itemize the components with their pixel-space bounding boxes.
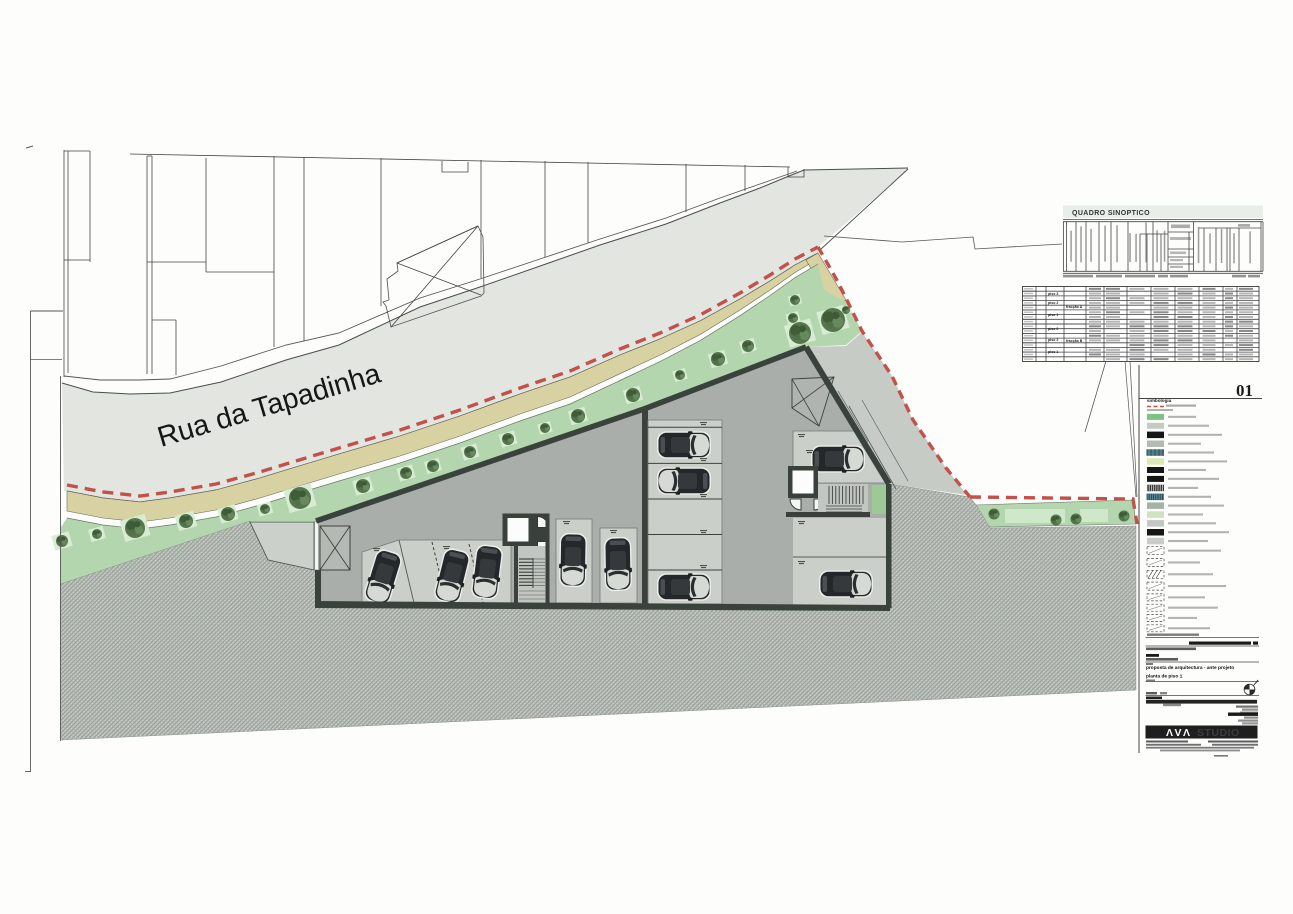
svg-text:piso 3: piso 3	[1048, 292, 1058, 296]
svg-text:piso 2: piso 2	[1048, 338, 1058, 342]
svg-text:fracção B: fracção B	[1066, 339, 1083, 343]
svg-text:fracção A: fracção A	[1066, 305, 1083, 309]
svg-text:01: 01	[1236, 381, 1253, 400]
svg-text:piso 1: piso 1	[1048, 350, 1058, 354]
svg-text:QUADRO SINOPTICO: QUADRO SINOPTICO	[1072, 210, 1150, 217]
svg-text:piso 1: piso 1	[1048, 313, 1058, 317]
svg-text:STUDIO: STUDIO	[1197, 727, 1240, 739]
svg-text:planta de piso 1: planta de piso 1	[1146, 674, 1183, 680]
svg-text:proposta de arquitectura - ant: proposta de arquitectura - ante projeto	[1146, 665, 1234, 671]
svg-text:ΛVΛ: ΛVΛ	[1166, 727, 1192, 739]
svg-text:piso 2: piso 2	[1048, 301, 1058, 305]
svg-text:simbologia: simbologia	[1147, 398, 1172, 403]
svg-text:piso 0: piso 0	[1048, 327, 1058, 331]
